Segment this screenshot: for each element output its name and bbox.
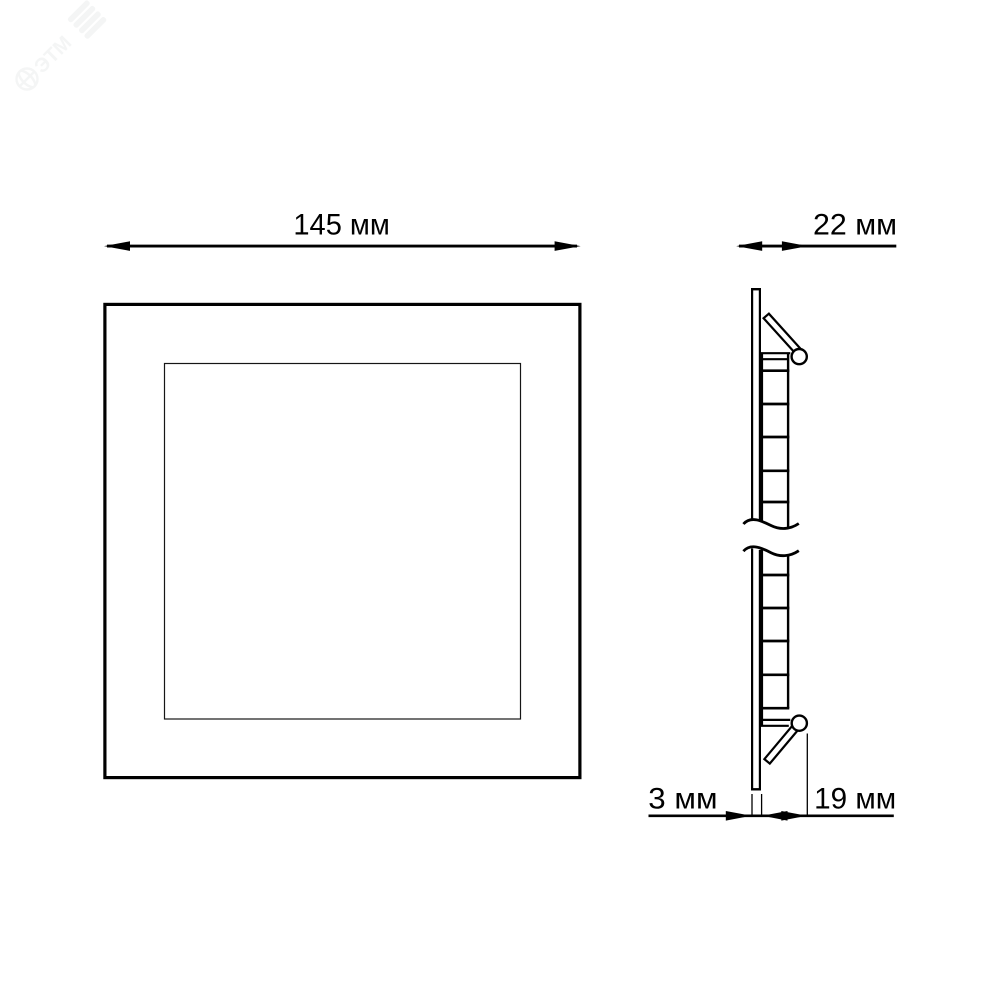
svg-text:3 мм: 3 мм	[648, 783, 717, 816]
svg-text:19 мм: 19 мм	[814, 783, 896, 816]
svg-text:145 мм: 145 мм	[293, 208, 390, 241]
svg-text:22 мм: 22 мм	[813, 208, 897, 241]
